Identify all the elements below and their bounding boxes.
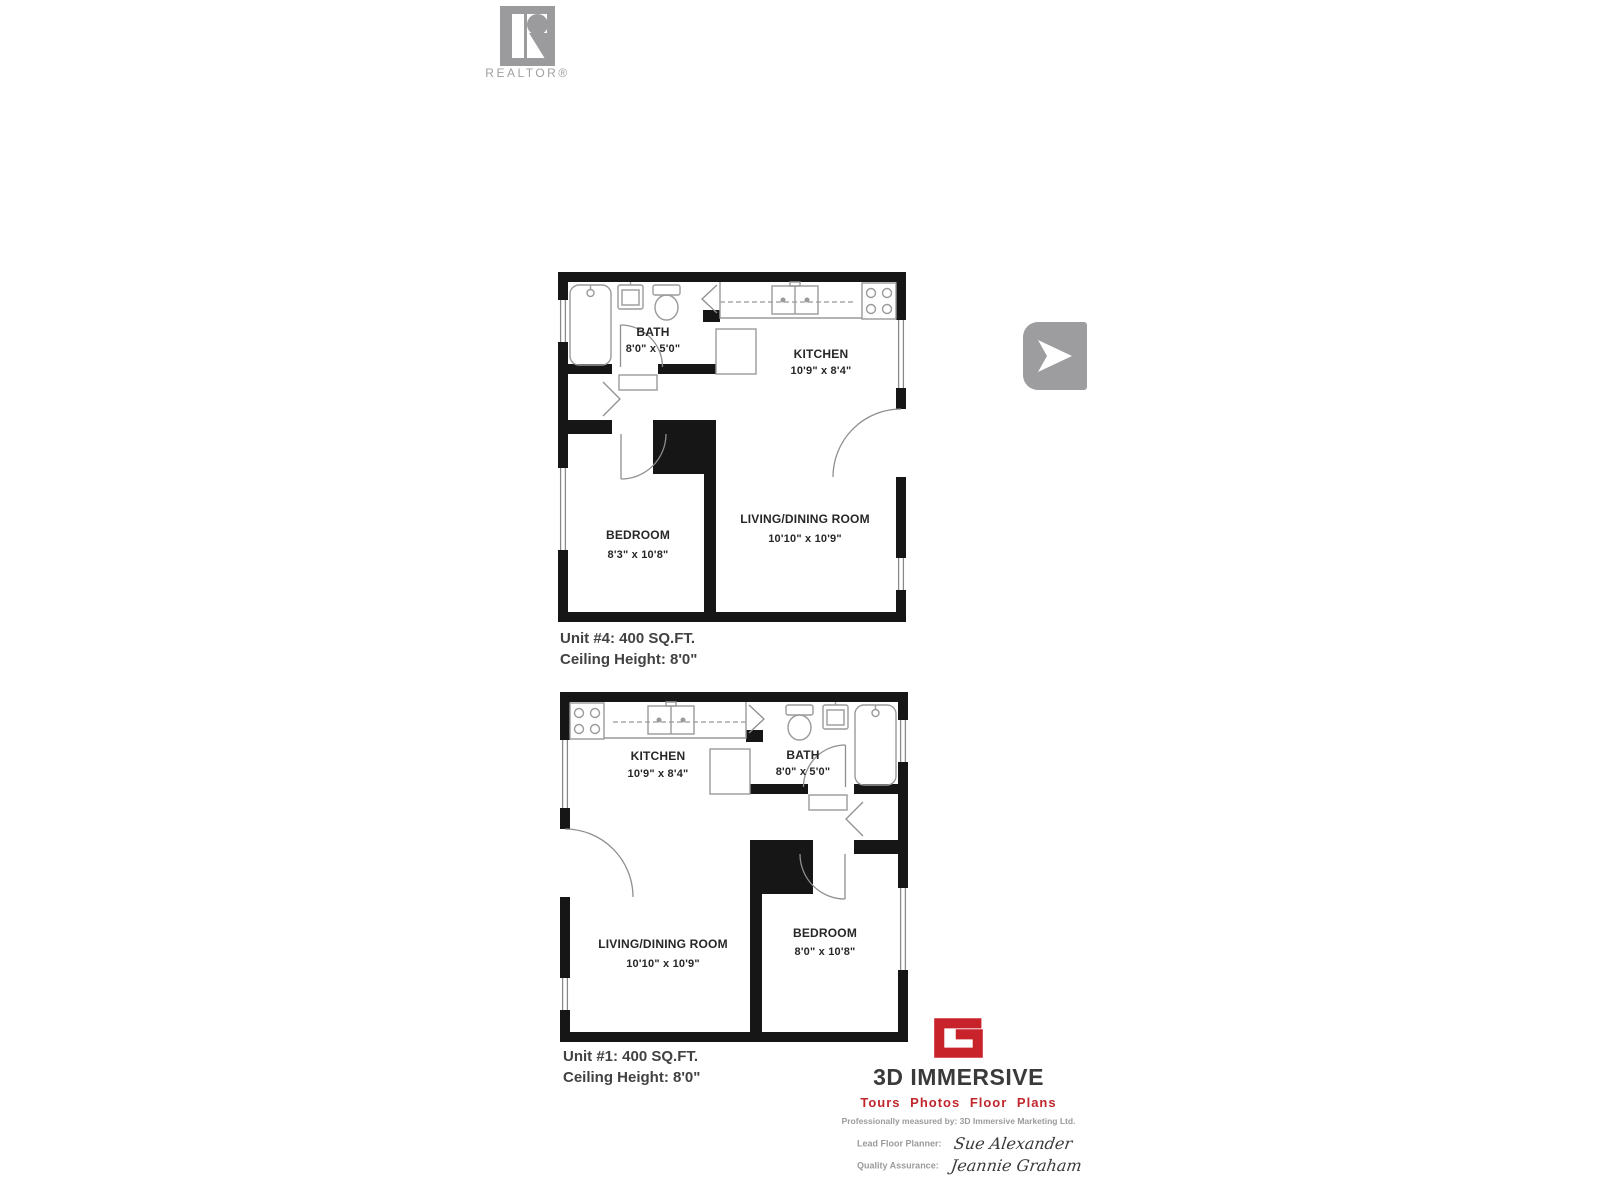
- brand-tagline: Tours Photos Floor Plans: [840, 1095, 1077, 1110]
- realtor-r-icon: [500, 6, 555, 66]
- room-dims-bedroom: 8'3" x 10'8": [608, 549, 669, 561]
- caption-unit-4-line1: Unit #4: 400 SQ.FT.: [560, 628, 697, 649]
- brand-measured: Professionally measured by: 3D Immersive…: [840, 1116, 1077, 1126]
- room-label-living: LIVING/DINING ROOM: [598, 937, 728, 951]
- room-dims-bedroom: 8'0" x 10'8": [795, 946, 856, 958]
- lead-planner-signature: Sue Alexander: [953, 1134, 1074, 1153]
- room-dims-kitchen: 10'9" x 8'4": [628, 768, 689, 780]
- page-canvas: REALTOR® BATH 8'0" x 5'0" KITCHEN 10'9" …: [0, 0, 1600, 1200]
- brand-lead-row: Lead Floor Planner: Sue Alexander: [857, 1134, 1072, 1153]
- brand-company: 3D IMMERSIVE: [840, 1064, 1077, 1091]
- room-label-living: LIVING/DINING ROOM: [740, 512, 870, 526]
- room-dims-kitchen: 10'9" x 8'4": [791, 365, 852, 377]
- caption-unit-1: Unit #1: 400 SQ.FT. Ceiling Height: 8'0": [563, 1046, 700, 1088]
- caption-unit-1-line2: Ceiling Height: 8'0": [563, 1067, 700, 1088]
- room-label-kitchen: KITCHEN: [794, 347, 849, 361]
- 3d-immersive-icon: [931, 1013, 986, 1063]
- lead-planner-label: Lead Floor Planner:: [857, 1139, 942, 1149]
- room-label-kitchen: KITCHEN: [631, 749, 686, 763]
- room-dims-bath: 8'0" x 5'0": [776, 766, 831, 778]
- room-dims-living: 10'10" x 10'9": [768, 533, 842, 545]
- room-label-bedroom: BEDROOM: [606, 528, 670, 542]
- caption-unit-1-line1: Unit #1: 400 SQ.FT.: [563, 1046, 700, 1067]
- play-arrow-icon: [1038, 340, 1072, 372]
- room-label-bedroom: BEDROOM: [793, 926, 857, 940]
- realtor-wordmark: REALTOR®: [470, 66, 585, 80]
- caption-unit-4: Unit #4: 400 SQ.FT. Ceiling Height: 8'0": [560, 628, 697, 670]
- brand-qa-row: Quality Assurance: Jeannie Graham: [857, 1156, 1082, 1175]
- caption-unit-4-line2: Ceiling Height: 8'0": [560, 649, 697, 670]
- room-dims-living: 10'10" x 10'9": [626, 958, 700, 970]
- brand-block: 3D IMMERSIVE Tours Photos Floor Plans Pr…: [840, 1008, 1077, 1183]
- room-label-bath: BATH: [786, 748, 819, 762]
- next-button[interactable]: [1023, 322, 1087, 390]
- room-dims-bath: 8'0" x 5'0": [626, 343, 681, 355]
- floorplan-unit-4: BATH 8'0" x 5'0" KITCHEN 10'9" x 8'4" BE…: [558, 272, 906, 622]
- qa-signature: Jeannie Graham: [950, 1156, 1083, 1175]
- floorplan-unit-1: KITCHEN 10'9" x 8'4" BATH 8'0" x 5'0" LI…: [560, 692, 908, 1042]
- room-label-bath: BATH: [636, 325, 669, 339]
- qa-label: Quality Assurance:: [857, 1161, 939, 1171]
